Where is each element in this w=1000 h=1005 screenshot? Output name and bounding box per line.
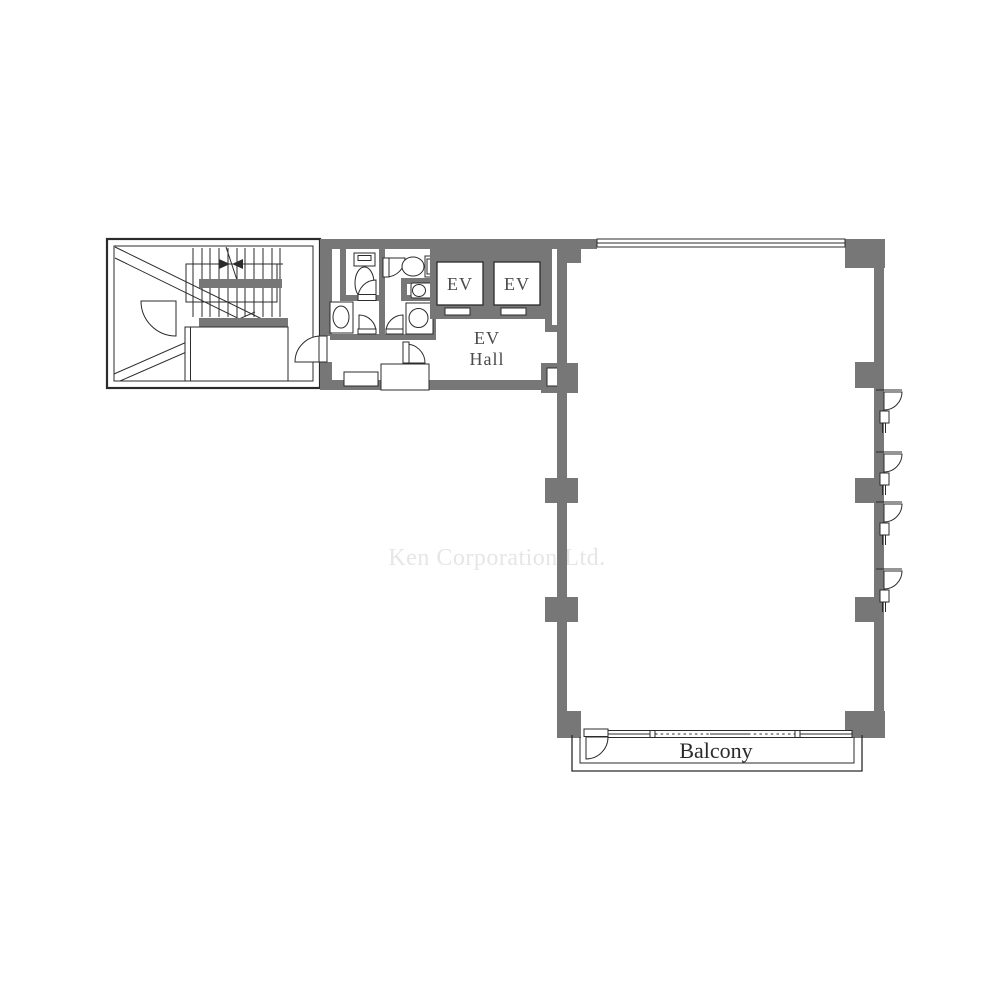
watermark-text: Ken Corporation Ltd. [388,545,605,571]
hall-recess [381,364,429,390]
bottom-window [608,731,852,738]
elevator-1-door [445,308,470,315]
elevator-1-label: EV [447,274,473,294]
columns [545,239,885,738]
balcony-label: Balcony [679,738,752,763]
ev-hall-label-line2: Hall [470,349,505,369]
stairwell [107,239,320,388]
hall-recess [344,372,378,386]
balcony-door-arc [584,729,608,759]
toilet-icon [402,256,434,277]
stair-lower-rail [199,318,288,327]
stair-mid-rail [199,279,282,288]
stair-door-arc [141,301,176,336]
door-arc [386,315,403,334]
washbasin-icon [330,302,353,333]
ev-hall-label-line1: EV [474,328,500,348]
stair-landing [185,327,288,381]
stair-direction-arrows [186,247,283,283]
door-arc [358,315,376,334]
ev-hall-door-arc [403,342,425,363]
elevators: EV EV [430,249,552,319]
elevator-2-door [501,308,526,315]
floor-plan: Ken Corporation Ltd. [0,0,1000,1000]
stair-entry-door-arc [295,336,327,362]
top-window [597,239,845,247]
elevator-2-label: EV [504,274,530,294]
core-top-wall [322,239,552,249]
main-room [545,239,902,738]
washbasin-icon [406,303,433,334]
sink-icon [411,283,432,298]
floor-plan-page: Ken Corporation Ltd. [0,0,1000,1000]
